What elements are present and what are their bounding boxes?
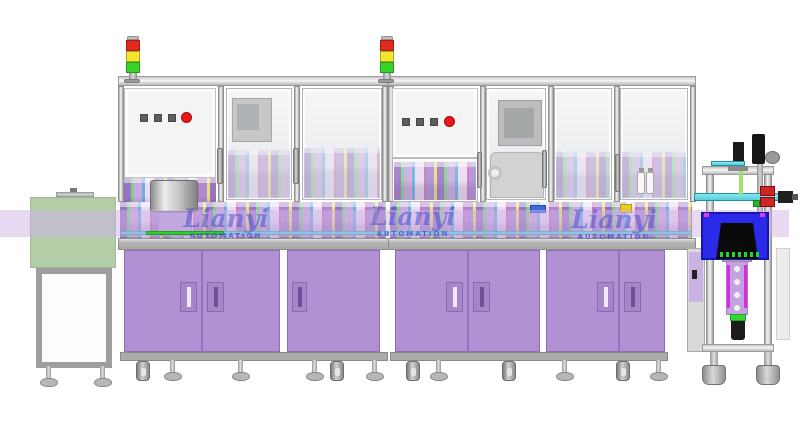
right-panel	[776, 248, 790, 340]
caster-wheel	[136, 361, 150, 381]
operator-panel	[124, 88, 216, 178]
watermark: Lianyi AUTOMATION	[566, 209, 662, 241]
frame-column	[690, 86, 696, 202]
door-handle	[217, 148, 223, 184]
indicator-dot	[760, 213, 765, 217]
stack-light-red	[380, 40, 394, 51]
control-box-screen	[237, 104, 259, 130]
panel-button	[140, 114, 148, 122]
servo-motor	[778, 191, 793, 203]
gripper-cylinder	[731, 321, 745, 340]
leveling-foot	[232, 360, 250, 382]
frame-bottom-beam	[702, 344, 774, 352]
stack-light-green	[380, 62, 394, 73]
door-handle	[477, 152, 482, 188]
door-handle-plate	[292, 282, 307, 312]
watermark: Lianyi AUTOMATION	[178, 208, 274, 240]
panel-button	[154, 114, 162, 122]
stack-light-yellow	[126, 51, 140, 62]
leveling-foot	[366, 360, 384, 382]
caster-wheel	[502, 361, 516, 381]
panel-button	[402, 118, 410, 126]
door-handle-plate	[180, 282, 197, 312]
door-handle-plate	[207, 282, 224, 312]
indicator-dot	[704, 213, 709, 217]
leveling-foot	[164, 360, 182, 382]
reagent-bottle	[646, 172, 654, 194]
leveling-foot	[430, 360, 448, 382]
leveling-foot	[306, 360, 324, 382]
motor-shaft	[792, 194, 798, 200]
leveling-foot	[650, 360, 668, 382]
inner-machinery	[304, 148, 380, 198]
cabinet-door-seam	[467, 250, 469, 352]
inner-machinery	[394, 162, 476, 200]
caster-wheel	[406, 361, 420, 381]
stack-light-base	[124, 79, 140, 83]
watermark-brand: Lianyi	[365, 206, 461, 228]
guide-rod	[739, 171, 743, 195]
z-slide-arm	[726, 261, 748, 315]
leveling-foot	[94, 366, 112, 388]
door-handle-plate	[597, 282, 614, 312]
caster-wheel	[330, 361, 344, 381]
watermark-sub: AUTOMATION	[566, 233, 662, 241]
camera-unit	[752, 134, 765, 164]
door-handle-plate	[446, 282, 463, 312]
stack-light-red	[126, 40, 140, 51]
leveling-foot	[40, 366, 58, 388]
panel-button	[168, 114, 176, 122]
motor-mount	[760, 186, 775, 196]
leveling-foot	[556, 360, 574, 382]
door-handle-plate	[624, 282, 641, 312]
estop-button	[181, 112, 192, 123]
inner-machinery	[622, 152, 686, 198]
actuator-mount	[728, 166, 748, 171]
frame-column	[294, 86, 300, 202]
panel-button	[430, 118, 438, 126]
door-handle	[542, 150, 547, 188]
panel-button	[416, 118, 424, 126]
stack-light-yellow	[380, 51, 394, 62]
caster-wheel	[616, 361, 630, 381]
frame-top-beam	[118, 76, 388, 86]
watermark-brand: Lianyi	[178, 208, 274, 230]
inner-machinery	[556, 152, 610, 198]
latch	[692, 270, 697, 279]
inner-machinery	[228, 150, 290, 198]
sensor-block	[753, 200, 760, 207]
gantry-deck	[711, 161, 745, 166]
motor-mount	[760, 197, 775, 207]
frame-top-beam	[388, 76, 696, 86]
automation-line-render: Lianyi AUTOMATION Lianyi AUTOMATION Lian…	[0, 0, 800, 438]
base-rail	[120, 352, 388, 361]
cabinet-door-seam	[618, 250, 620, 352]
camera-flange	[765, 151, 780, 164]
leveling-foot	[702, 352, 726, 386]
watermark-sub: AUTOMATION	[178, 232, 274, 240]
tunnel-stand	[36, 268, 112, 368]
door-handle	[293, 148, 299, 184]
stack-light-base	[378, 79, 394, 83]
stack-light-green	[126, 62, 140, 73]
cabinet-door-seam	[201, 250, 203, 352]
frame-column	[218, 86, 224, 202]
hmi-monitor-screen	[504, 108, 534, 138]
estop-button	[444, 116, 455, 127]
reagent-bottle	[637, 172, 645, 194]
leveling-foot	[756, 352, 780, 386]
led-strip	[717, 252, 759, 257]
gripper-band	[730, 314, 746, 321]
tunnel-knob	[70, 188, 77, 192]
machine-ring	[488, 166, 502, 180]
door-handle-plate	[473, 282, 490, 312]
watermark-sub: AUTOMATION	[365, 230, 461, 238]
watermark: Lianyi AUTOMATION	[365, 206, 461, 238]
watermark-brand: Lianyi	[566, 209, 662, 231]
